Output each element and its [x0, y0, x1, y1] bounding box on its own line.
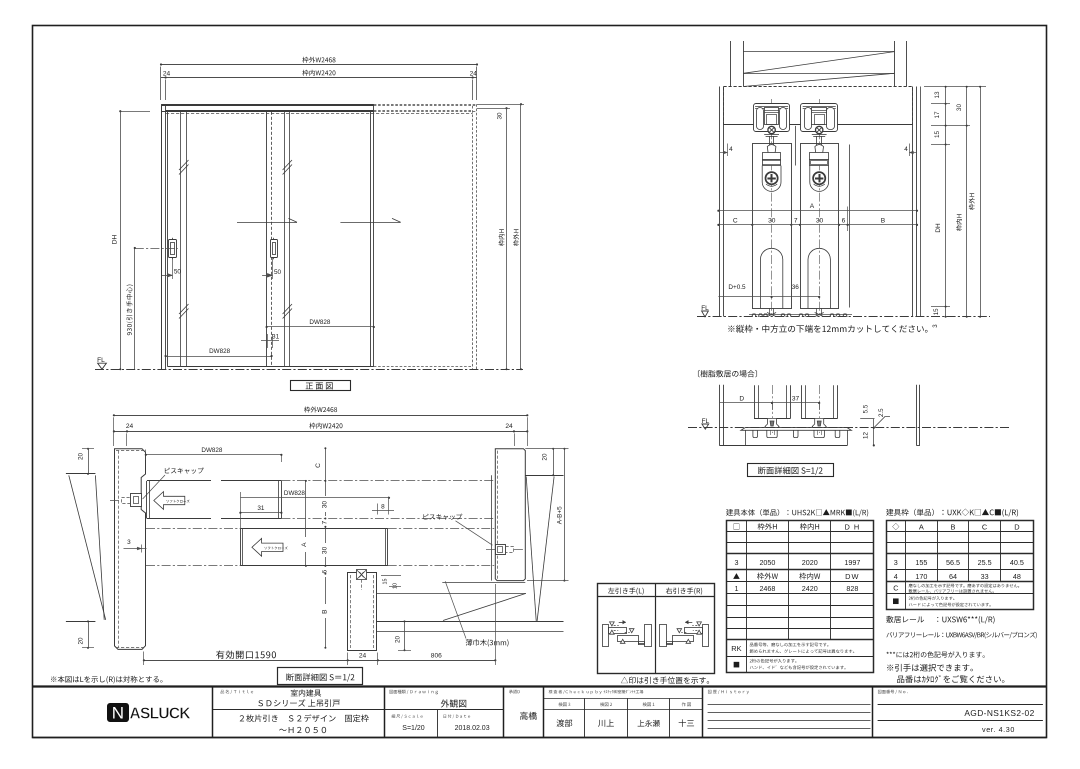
- svg-text:5.5: 5.5: [863, 404, 870, 413]
- svg-text:24: 24: [359, 653, 367, 660]
- svg-text:A: A: [919, 522, 924, 531]
- svg-text:36: 36: [792, 284, 800, 291]
- svg-text:40.5: 40.5: [1010, 558, 1024, 567]
- svg-text:A: A: [810, 203, 815, 210]
- svg-text:17: 17: [934, 111, 941, 119]
- svg-text:33: 33: [981, 572, 989, 581]
- svg-text:DW828: DW828: [201, 447, 222, 454]
- svg-text:31: 31: [257, 505, 265, 512]
- svg-text:3: 3: [932, 324, 939, 328]
- svg-text:4: 4: [904, 146, 908, 153]
- svg-text:30: 30: [321, 501, 328, 509]
- svg-text:2050: 2050: [759, 558, 775, 567]
- svg-text:30: 30: [321, 546, 328, 554]
- svg-text:15: 15: [933, 308, 940, 315]
- svg-text:4: 4: [894, 572, 898, 581]
- svg-text:48: 48: [1013, 572, 1021, 581]
- svg-text:DW828: DW828: [309, 319, 330, 326]
- svg-text:30: 30: [956, 104, 963, 112]
- svg-text:20: 20: [542, 453, 549, 461]
- svg-text:3: 3: [894, 558, 898, 567]
- svg-text:12: 12: [863, 432, 870, 439]
- svg-text:DW: DW: [845, 572, 859, 581]
- svg-text:20: 20: [77, 637, 84, 645]
- svg-text:2018.02.03: 2018.02.03: [455, 725, 490, 732]
- svg-text:B: B: [321, 609, 328, 614]
- svg-text:25.5: 25.5: [978, 558, 992, 567]
- svg-text:30: 30: [768, 217, 776, 224]
- svg-text:N: N: [112, 704, 124, 723]
- svg-text:ver. 4.30: ver. 4.30: [982, 725, 1015, 734]
- svg-text:7: 7: [794, 217, 798, 224]
- svg-text:6: 6: [321, 570, 328, 574]
- svg-text:C: C: [982, 522, 988, 531]
- svg-text:D: D: [739, 395, 744, 402]
- svg-text:50: 50: [174, 269, 182, 276]
- svg-text:6: 6: [842, 217, 846, 224]
- svg-text:C: C: [733, 217, 738, 224]
- svg-text:DW828: DW828: [284, 490, 305, 497]
- svg-text:15: 15: [934, 131, 941, 139]
- svg-text:B: B: [881, 217, 886, 224]
- svg-text:13: 13: [934, 91, 941, 99]
- svg-text:56.5: 56.5: [946, 558, 960, 567]
- svg-text:24: 24: [126, 423, 134, 430]
- svg-text:A-B+5: A-B+5: [557, 506, 564, 524]
- svg-text:2420: 2420: [802, 584, 818, 593]
- svg-text:828: 828: [846, 584, 858, 593]
- svg-text:3: 3: [127, 539, 131, 546]
- svg-text:170: 170: [915, 572, 927, 581]
- svg-text:30: 30: [497, 112, 504, 120]
- svg-text:20: 20: [77, 453, 84, 461]
- svg-text:S=1/20: S=1/20: [402, 725, 424, 732]
- svg-text:4: 4: [729, 146, 733, 153]
- svg-text:C: C: [893, 584, 898, 593]
- svg-text:2.5: 2.5: [878, 408, 885, 417]
- svg-text:15: 15: [383, 579, 389, 585]
- svg-text:1: 1: [734, 584, 738, 593]
- svg-text:ASLUCK: ASLUCK: [130, 705, 192, 722]
- svg-text:37: 37: [792, 395, 800, 402]
- svg-text:DW828: DW828: [209, 348, 230, 355]
- svg-text:20: 20: [394, 636, 401, 644]
- svg-text:10: 10: [393, 583, 399, 589]
- svg-text:A: A: [301, 542, 308, 547]
- svg-text:2020: 2020: [802, 558, 818, 567]
- svg-text:24: 24: [163, 70, 171, 77]
- svg-text:1997: 1997: [844, 558, 860, 567]
- svg-text:24: 24: [505, 423, 513, 430]
- svg-text:3: 3: [734, 558, 738, 567]
- svg-text:D: D: [1014, 522, 1019, 531]
- svg-text:8: 8: [381, 503, 385, 510]
- svg-text:C: C: [315, 463, 322, 468]
- svg-text:2468: 2468: [759, 584, 775, 593]
- svg-text:7: 7: [321, 520, 328, 524]
- svg-text:DH: DH: [935, 223, 942, 233]
- svg-text:RK: RK: [731, 644, 741, 653]
- svg-text:155: 155: [915, 558, 927, 567]
- svg-text:AGD-NS1KS2-02: AGD-NS1KS2-02: [964, 708, 1034, 718]
- svg-text:50: 50: [274, 269, 282, 276]
- svg-text:B: B: [951, 522, 956, 531]
- svg-text:31: 31: [272, 333, 280, 340]
- svg-text:DH: DH: [112, 235, 119, 245]
- svg-text:D H: D H: [844, 522, 860, 531]
- svg-text:D+0.5: D+0.5: [728, 284, 746, 291]
- svg-text:30: 30: [816, 217, 824, 224]
- svg-text:806: 806: [431, 653, 442, 660]
- svg-text:64: 64: [949, 572, 957, 581]
